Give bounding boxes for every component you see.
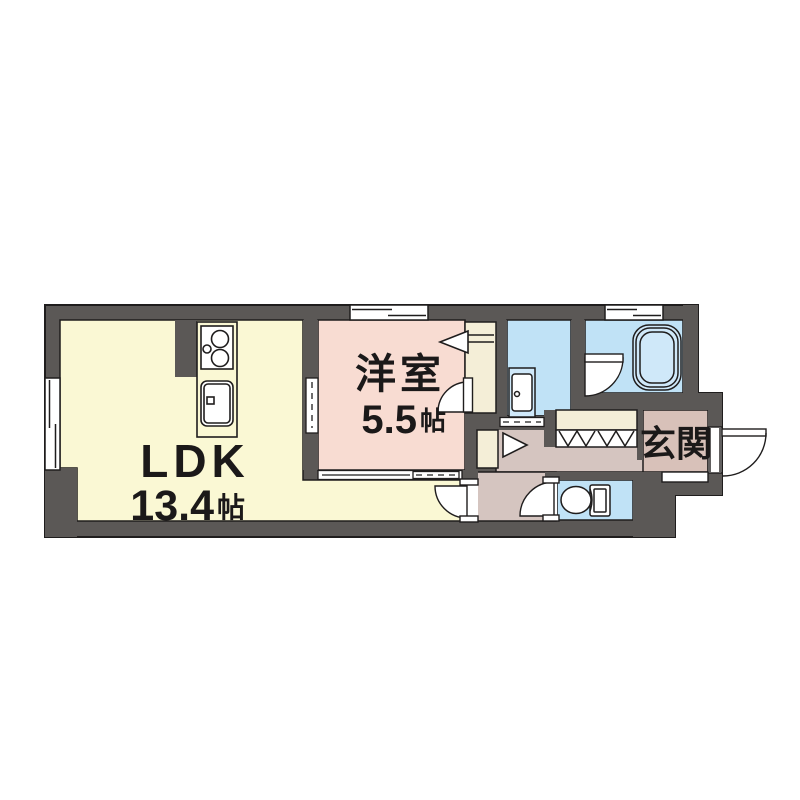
room-ldk-area-unit: 帖 <box>217 492 245 523</box>
window-bathroom <box>605 305 663 320</box>
stove-burner-small <box>203 345 211 353</box>
toilet-fixture <box>561 485 610 516</box>
kitchen-unit <box>197 322 237 437</box>
room-yoshitsu-area: 5.5 <box>361 398 417 442</box>
room-ldk-area: 13.4 <box>130 482 214 530</box>
washbasin <box>509 368 535 417</box>
stove-burner <box>212 331 229 348</box>
floorplan-canvas: LDK 13.4 帖 洋室 5.5 帖 玄関 <box>0 0 800 800</box>
window-balcony <box>45 378 60 470</box>
entrance-step <box>662 472 708 482</box>
closet-hallway <box>477 430 498 468</box>
stove-burner <box>212 350 229 367</box>
room-yoshitsu-area-unit: 帖 <box>420 406 446 436</box>
window-yoshitsu <box>350 305 428 320</box>
room-ldk-label: LDK <box>140 435 250 487</box>
bathtub <box>633 325 681 390</box>
room-yoshitsu-label: 洋室 <box>355 351 445 397</box>
room-genkan-label: 玄関 <box>640 423 712 464</box>
sink-detail <box>207 397 214 404</box>
floorplan-drawing: LDK 13.4 帖 洋室 5.5 帖 玄関 <box>0 0 800 800</box>
toilet-bowl <box>561 487 591 514</box>
entrance-door-leaf <box>722 429 766 436</box>
entrance-door-swing <box>723 433 766 476</box>
shoe-closet <box>556 410 637 430</box>
